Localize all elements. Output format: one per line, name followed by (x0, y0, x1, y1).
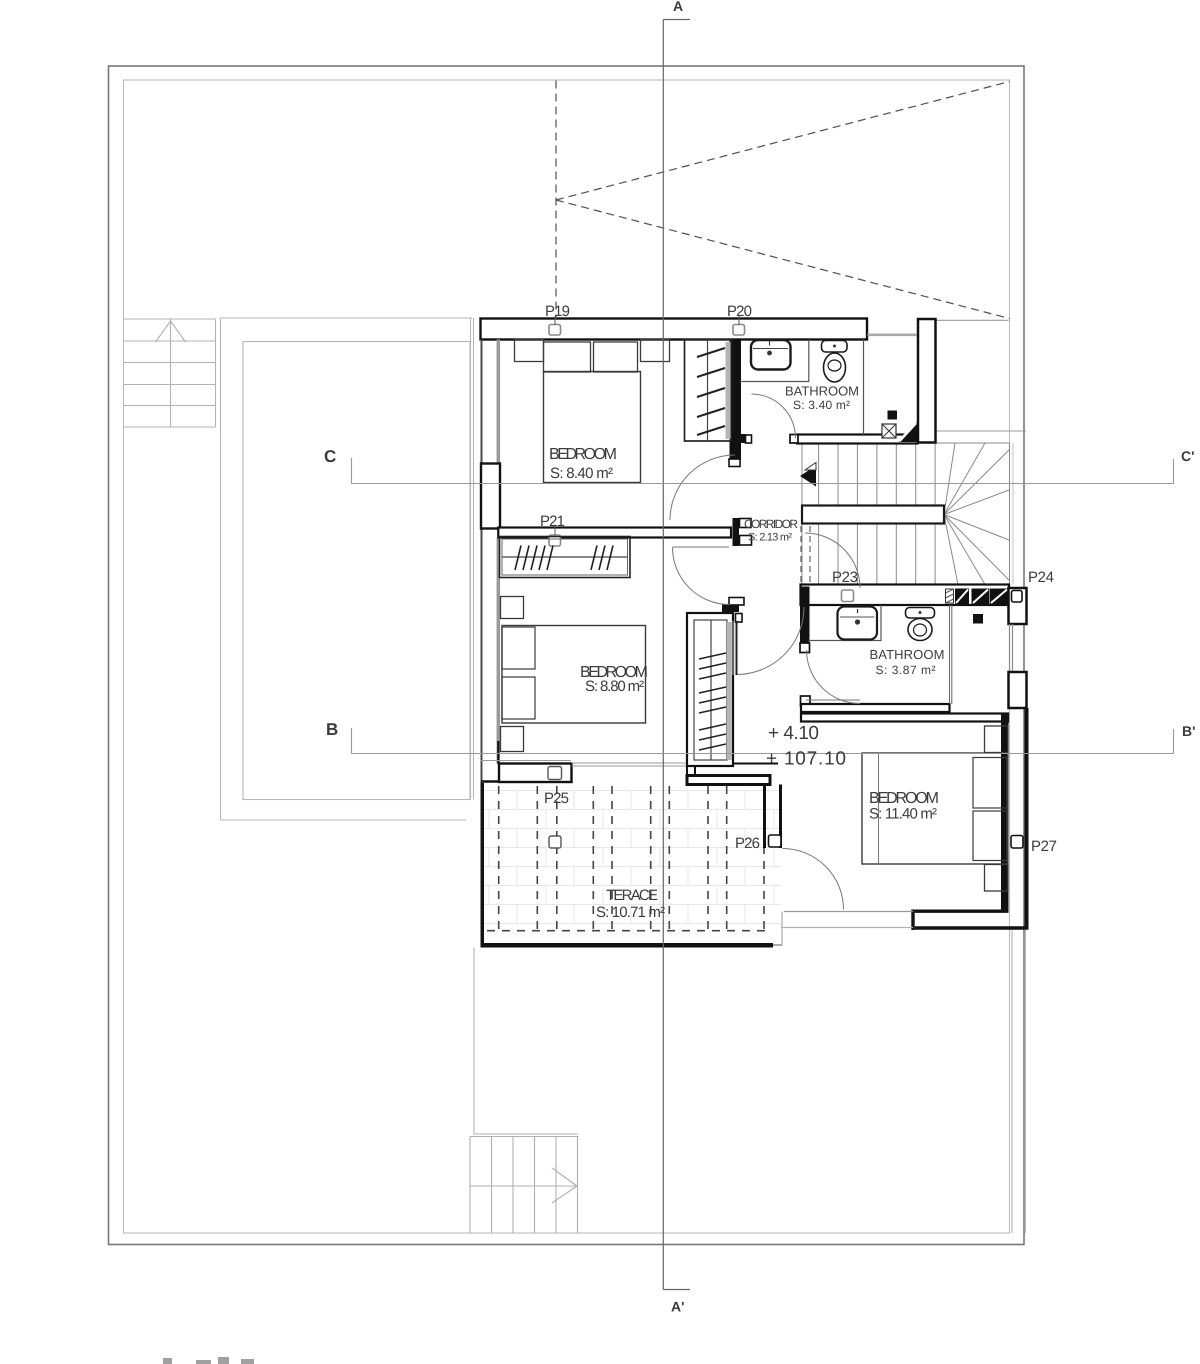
svg-text:P25: P25 (544, 790, 569, 807)
svg-text:A': A' (671, 1299, 684, 1315)
svg-text:+ 107.10: + 107.10 (766, 749, 846, 770)
svg-text:P20: P20 (727, 303, 752, 320)
svg-text:S: 10.71 m²: S: 10.71 m² (596, 904, 665, 921)
svg-text:P26: P26 (735, 835, 760, 852)
svg-text:S: 2.13 m²: S: 2.13 m² (748, 532, 792, 544)
svg-text:BATHROOM: BATHROOM (785, 384, 859, 399)
svg-text:A: A (673, 0, 683, 14)
svg-text:B: B (326, 720, 338, 739)
svg-text:+ 4.10: + 4.10 (768, 723, 819, 744)
svg-text:BATHROOM: BATHROOM (870, 647, 945, 662)
svg-text:BEDROOM: BEDROOM (869, 790, 939, 807)
svg-text:C: C (324, 447, 336, 466)
svg-text:S: 8.80 m²: S: 8.80 m² (585, 678, 644, 695)
svg-text:S: 3.87 m²: S: 3.87 m² (876, 663, 936, 677)
svg-text:P21: P21 (540, 513, 565, 530)
svg-text:P27: P27 (1031, 838, 1057, 855)
svg-text:S: 3.40 m²: S: 3.40 m² (793, 398, 850, 412)
svg-text:TERACE: TERACE (606, 887, 658, 904)
svg-text:P19: P19 (545, 303, 570, 320)
svg-text:S: 11.40 m²: S: 11.40 m² (869, 806, 937, 823)
svg-text:P23: P23 (832, 569, 858, 586)
svg-text:C': C' (1181, 448, 1194, 464)
svg-text:BEDROOM: BEDROOM (549, 446, 617, 463)
svg-text:S: 8.40 m²: S: 8.40 m² (550, 465, 613, 482)
svg-text:P24: P24 (1028, 569, 1054, 586)
svg-text:CORRIDOR: CORRIDOR (744, 517, 798, 531)
svg-text:B': B' (1182, 723, 1195, 739)
